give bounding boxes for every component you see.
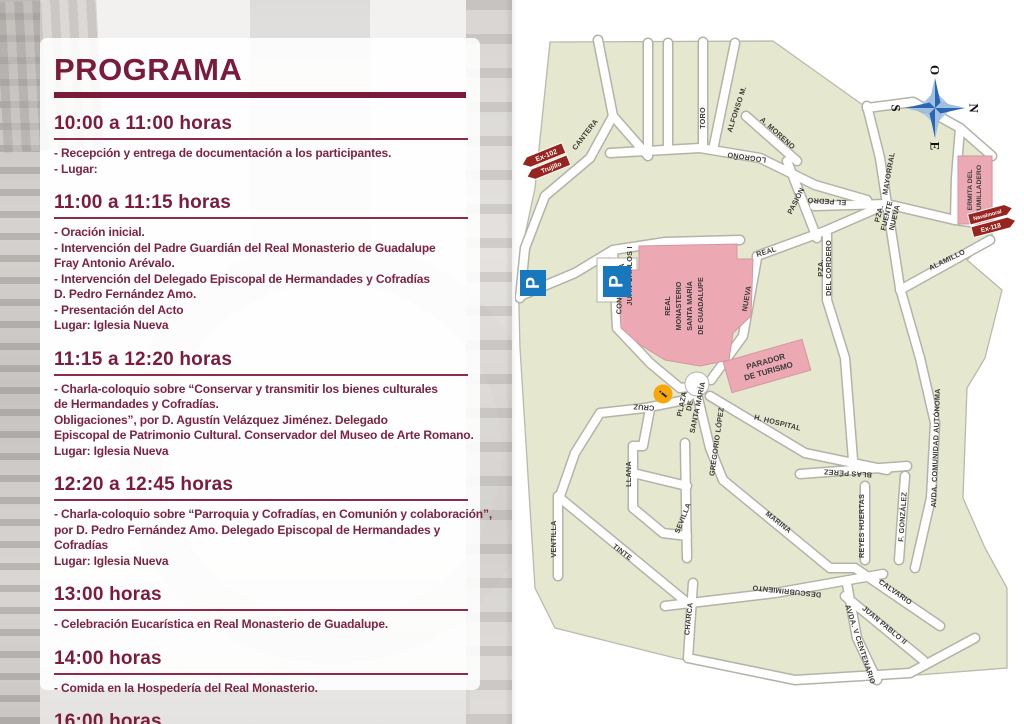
town-map-svg: REAL MONASTERIO SANTA MARÍA DE GUADALUPE…	[515, 28, 1015, 708]
program-line: - Lugar:	[54, 162, 472, 178]
section-time: 16:00 horas	[54, 711, 468, 724]
program-page: PROGRAMA 10:00 a 11:00 horas - Recepción…	[0, 0, 512, 724]
program-line: - Recepción y entrega de documentación a…	[54, 146, 472, 162]
compass-letter-left: S	[889, 104, 904, 111]
monastery-label-line: MONASTERIO	[674, 281, 683, 330]
page-title: PROGRAMA	[54, 54, 472, 85]
plaza-label-line: DEL CORDERO	[824, 240, 833, 296]
section-time: 13:00 horas	[54, 584, 468, 611]
street-label: TORO	[698, 107, 707, 129]
program-line: D. Pedro Fernández Amo.	[54, 287, 472, 303]
title-underline	[54, 92, 466, 98]
program-line: Obligaciones”, por D. Agustín Velázquez …	[54, 413, 472, 429]
program-line: Lugar: Iglesia Nueva	[54, 444, 472, 460]
program-line: Episcopal de Patrimonio Cultural. Conser…	[54, 428, 472, 444]
section-time: 11:00 a 11:15 horas	[54, 192, 468, 219]
program-card: PROGRAMA 10:00 a 11:00 horas - Recepción…	[40, 38, 480, 690]
compass-letter-right: N	[967, 103, 982, 113]
program-section: 13:00 horas - Celebración Eucarística en…	[54, 584, 472, 633]
street-label: REYES HUERTAS	[857, 494, 866, 558]
program-line: - Charla-coloquio sobre “Parroquia y Cof…	[54, 507, 472, 523]
compass-letter-bottom: E	[928, 142, 943, 151]
program-line: - Intervención del Padre Guardián del Re…	[54, 241, 472, 257]
program-line: - Charla-coloquio sobre “Conservar y tra…	[54, 382, 472, 398]
info-icon: i	[654, 385, 673, 404]
program-section: 14:00 horas - Comida en la Hospedería de…	[54, 648, 472, 697]
program-line: - Celebración Eucarística en Real Monast…	[54, 617, 472, 633]
parking-icon: P	[603, 266, 631, 297]
program-line: - Intervención del Delegado Episcopal de…	[54, 272, 472, 288]
parking-letter: P	[523, 277, 543, 289]
program-section: 10:00 a 11:00 horas - Recepción y entreg…	[54, 113, 472, 177]
section-time: 14:00 horas	[54, 648, 468, 675]
program-line: - Presentación del Acto	[54, 303, 472, 319]
program-line: Cofradías	[54, 538, 472, 554]
ermita-label-line: ERMITA DEL	[967, 170, 974, 211]
program-line: de Hermandades y Cofradías.	[54, 397, 472, 413]
street-label: VENTILLA	[549, 520, 558, 558]
street-label: CRUZ	[633, 402, 655, 412]
town-map: REAL MONASTERIO SANTA MARÍA DE GUADALUPE…	[515, 28, 1015, 708]
program-line: - Oración inicial.	[54, 225, 472, 241]
program-section: 16:00 horas - Acto Mariano.	[54, 711, 472, 724]
program-section: 11:15 a 12:20 horas - Charla-coloquio so…	[54, 349, 472, 460]
program-line: - Comida en la Hospedería del Real Monas…	[54, 681, 472, 697]
monastery-label-line: SANTA MARÍA	[685, 281, 694, 331]
compass-letter-top: O	[928, 65, 943, 75]
section-time: 12:20 a 12:45 horas	[54, 474, 468, 501]
section-time: 11:15 a 12:20 horas	[54, 349, 468, 376]
program-line: por D. Pedro Fernández Amo. Delegado Epi…	[54, 523, 472, 539]
street-label: LLANA	[624, 461, 633, 487]
program-line: Lugar: Iglesia Nueva	[54, 554, 472, 570]
monastery-label-line: REAL	[663, 296, 672, 316]
program-section: 12:20 a 12:45 horas - Charla-coloquio so…	[54, 474, 472, 569]
program-section: 11:00 a 11:15 horas - Oración inicial. -…	[54, 192, 472, 334]
parking-letter: P	[607, 275, 628, 288]
section-time: 10:00 a 11:00 horas	[54, 113, 468, 140]
parking-icon: P	[520, 270, 546, 296]
program-line: Fray Antonio Arévalo.	[54, 256, 472, 272]
monastery-label-line: DE GUADALUPE	[696, 277, 705, 335]
ermita-label-line: HUMILLADERO	[976, 165, 983, 215]
program-line: Lugar: Iglesia Nueva	[54, 318, 472, 334]
